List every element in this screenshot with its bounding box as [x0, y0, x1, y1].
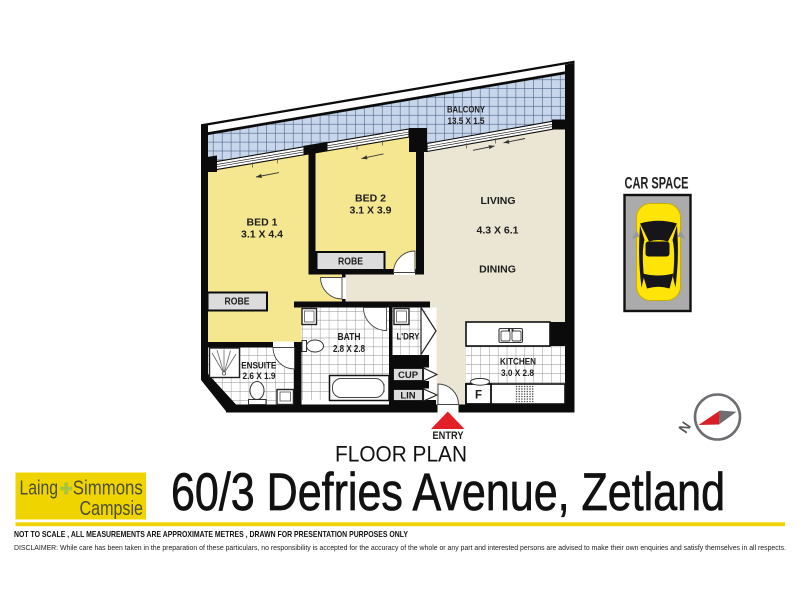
svg-text:3.1 X 4.4: 3.1 X 4.4 — [241, 229, 283, 241]
svg-text:LIVING: LIVING — [480, 195, 515, 207]
svg-text:Campsie: Campsie — [80, 497, 144, 520]
svg-text:13.5 X 1.5: 13.5 X 1.5 — [448, 116, 486, 127]
svg-text:LIN: LIN — [400, 390, 415, 401]
svg-text:ENTRY: ENTRY — [433, 430, 465, 442]
svg-text:CUP: CUP — [398, 370, 419, 381]
svg-text:2.6 X 1.9: 2.6 X 1.9 — [243, 371, 276, 381]
svg-text:Laing: Laing — [20, 476, 59, 499]
svg-text:BATH: BATH — [338, 332, 361, 343]
svg-text:3.0 X 2.8: 3.0 X 2.8 — [501, 368, 534, 379]
svg-text:BALCONY: BALCONY — [447, 105, 486, 116]
svg-text:F: F — [475, 390, 482, 402]
svg-text:ROBE: ROBE — [338, 257, 363, 268]
svg-text:ROBE: ROBE — [225, 297, 250, 308]
svg-text:BED 1: BED 1 — [247, 217, 278, 229]
svg-text:L'DRY: L'DRY — [397, 332, 420, 342]
svg-text:DISCLAIMER: While care has be: DISCLAIMER: While care has been taken in… — [14, 545, 786, 552]
svg-text:DINING: DINING — [479, 264, 516, 276]
svg-text:CAR SPACE: CAR SPACE — [625, 175, 689, 193]
svg-text:2.8 X 2.8: 2.8 X 2.8 — [333, 344, 365, 355]
svg-text:KITCHEN: KITCHEN — [500, 357, 536, 368]
svg-text:3.1 X 3.9: 3.1 X 3.9 — [349, 205, 391, 217]
svg-text:N: N — [675, 419, 694, 436]
svg-text:BED 2: BED 2 — [355, 193, 386, 205]
svg-text:60/3 Defries Avenue, Zetland: 60/3 Defries Avenue, Zetland — [171, 463, 725, 522]
svg-text:4.3 X 6.1: 4.3 X 6.1 — [476, 225, 518, 237]
svg-text:ENSUITE: ENSUITE — [241, 361, 276, 371]
svg-text:NOT TO SCALE , ALL MEASUREMENT: NOT TO SCALE , ALL MEASUREMENTS ARE APPR… — [14, 529, 408, 539]
